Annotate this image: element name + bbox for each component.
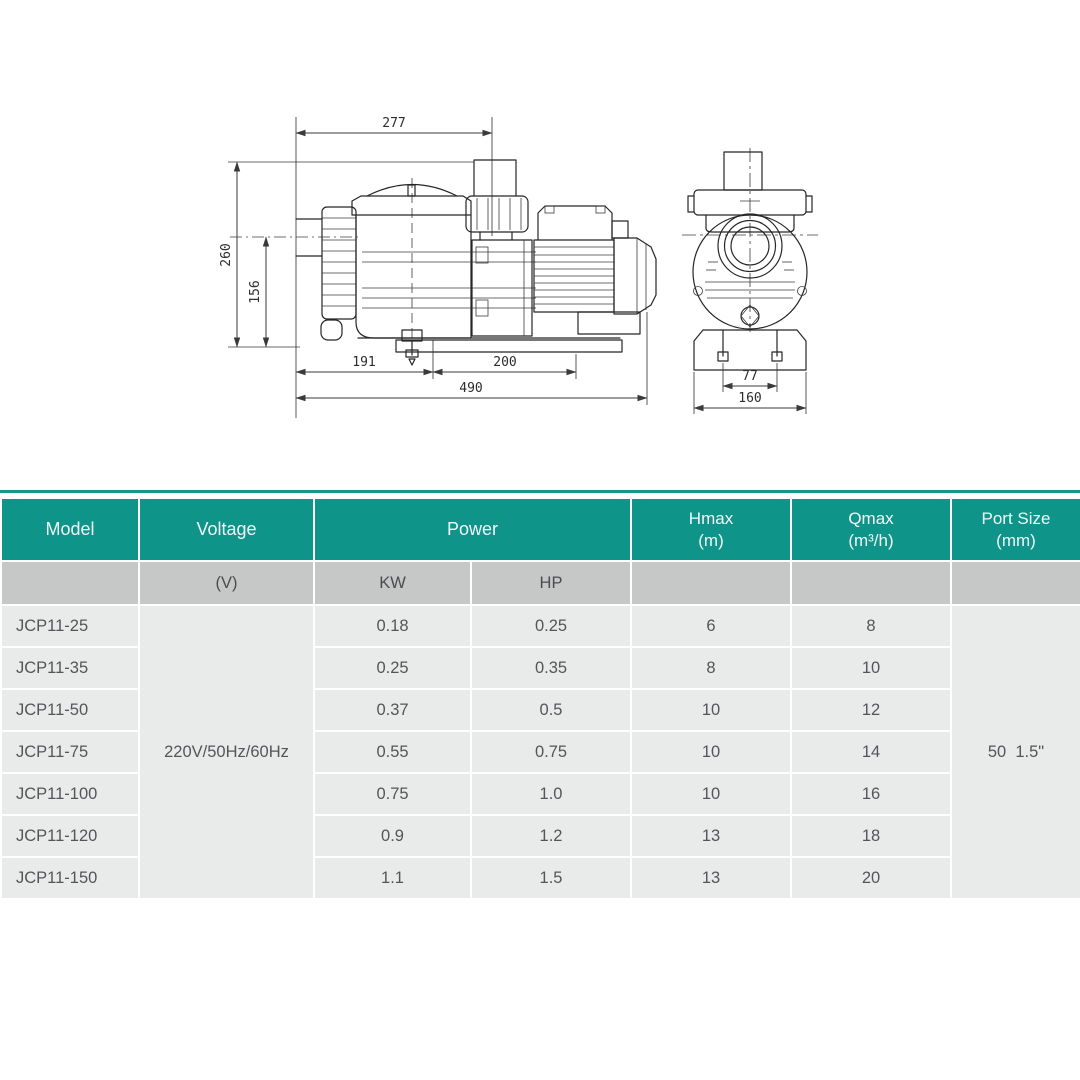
hp-cell: 1.5 <box>471 857 631 899</box>
qmax-cell: 12 <box>791 689 951 731</box>
kw-cell: 1.1 <box>314 857 471 899</box>
pump-technical-drawing: 277 260 156 191 200 490 <box>0 0 1080 470</box>
model-cell: JCP11-100 <box>1 773 139 815</box>
inlet-union-ribs <box>322 218 356 306</box>
kw-cell: 0.75 <box>314 773 471 815</box>
hmax-cell: 13 <box>631 815 791 857</box>
motor-fins <box>534 247 614 304</box>
header-port-size: Port Size (mm) <box>951 498 1080 561</box>
model-cell: JCP11-150 <box>1 857 139 899</box>
dim-label-center-height: 156 <box>248 280 263 303</box>
port-cell: 50 1.5" <box>951 605 1080 899</box>
voltage-cell: 220V/50Hz/60Hz <box>139 605 314 899</box>
kw-cell: 0.55 <box>314 731 471 773</box>
dim-label-bolt-spacing: 77 <box>742 369 758 384</box>
hmax-cell: 10 <box>631 731 791 773</box>
hp-cell: 0.75 <box>471 731 631 773</box>
dim-label-base-width: 160 <box>738 391 761 406</box>
model-cell: JCP11-75 <box>1 731 139 773</box>
spec-row: JCP11-25220V/50Hz/60Hz0.180.256850 1.5" <box>1 605 1080 647</box>
model-cell: JCP11-50 <box>1 689 139 731</box>
subheader-voltage-unit: (V) <box>139 561 314 605</box>
dim-label-top-width: 277 <box>382 116 405 131</box>
header-hmax-name: Hmax <box>632 508 790 529</box>
header-model: Model <box>1 498 139 561</box>
hmax-cell: 10 <box>631 689 791 731</box>
drain-plug <box>321 320 342 340</box>
kw-cell: 0.9 <box>314 815 471 857</box>
header-qmax: Qmax (m³/h) <box>791 498 951 561</box>
hp-cell: 0.35 <box>471 647 631 689</box>
subheader-kw: KW <box>314 561 471 605</box>
header-voltage: Voltage <box>139 498 314 561</box>
header-hmax: Hmax (m) <box>631 498 791 561</box>
hp-cell: 0.5 <box>471 689 631 731</box>
pump-spec-sheet: { "drawing": { "side_view": { "dim_top_w… <box>0 0 1080 1080</box>
subheader-port-empty <box>951 561 1080 605</box>
pump-side-view: 277 260 156 191 200 490 <box>219 116 656 418</box>
header-qmax-name: Qmax <box>792 508 950 529</box>
subheader-model-empty <box>1 561 139 605</box>
hmax-cell: 10 <box>631 773 791 815</box>
model-cell: JCP11-25 <box>1 605 139 647</box>
hp-cell: 0.25 <box>471 605 631 647</box>
dim-label-base-front: 191 <box>352 355 375 370</box>
dim-label-base-rear: 200 <box>493 355 516 370</box>
qmax-cell: 18 <box>791 815 951 857</box>
qmax-cell: 16 <box>791 773 951 815</box>
dim-label-overall-height: 260 <box>219 243 234 266</box>
qmax-cell: 10 <box>791 647 951 689</box>
pump-front-view: 77 160 <box>682 148 818 414</box>
subheader-hp: HP <box>471 561 631 605</box>
header-qmax-unit: (m³/h) <box>792 530 950 551</box>
qmax-cell: 14 <box>791 731 951 773</box>
kw-cell: 0.37 <box>314 689 471 731</box>
outlet-union-ribs <box>477 198 521 230</box>
header-port-unit: (mm) <box>952 530 1080 551</box>
model-cell: JCP11-120 <box>1 815 139 857</box>
hmax-cell: 13 <box>631 857 791 899</box>
spec-table-body: JCP11-25220V/50Hz/60Hz0.180.256850 1.5"J… <box>1 605 1080 899</box>
kw-cell: 0.18 <box>314 605 471 647</box>
model-cell: JCP11-35 <box>1 647 139 689</box>
hp-cell: 1.2 <box>471 815 631 857</box>
header-power: Power <box>314 498 631 561</box>
subheader-hmax-empty <box>631 561 791 605</box>
qmax-cell: 20 <box>791 857 951 899</box>
qmax-cell: 8 <box>791 605 951 647</box>
section-divider <box>0 490 1080 493</box>
header-hmax-unit: (m) <box>632 530 790 551</box>
hmax-cell: 8 <box>631 647 791 689</box>
hp-cell: 1.0 <box>471 773 631 815</box>
table-subheader-row: (V) KW HP <box>1 561 1080 605</box>
header-port-name: Port Size <box>952 508 1080 529</box>
strainer-body-lines <box>362 252 536 308</box>
spec-table: Model Voltage Power Hmax (m) Qmax (m³/h)… <box>0 497 1080 900</box>
subheader-qmax-empty <box>791 561 951 605</box>
hmax-cell: 6 <box>631 605 791 647</box>
table-header-row: Model Voltage Power Hmax (m) Qmax (m³/h)… <box>1 498 1080 561</box>
dim-label-overall-length: 490 <box>459 381 482 396</box>
kw-cell: 0.25 <box>314 647 471 689</box>
